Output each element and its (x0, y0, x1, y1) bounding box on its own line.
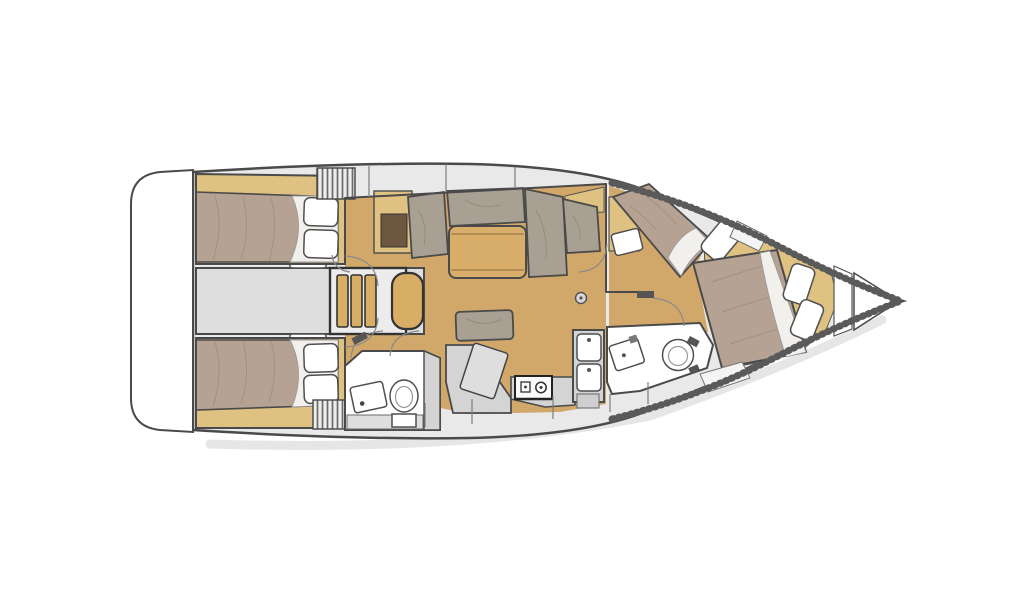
aft-head-counter (424, 351, 440, 430)
pillow (304, 343, 339, 372)
sofa-cushion (525, 189, 567, 277)
stair-tread (351, 275, 362, 327)
stove (515, 376, 552, 399)
pillow (304, 374, 339, 403)
boat-floorplan (0, 0, 1024, 600)
salon-table (449, 226, 526, 278)
mast-post (576, 293, 587, 304)
door-leaf (637, 291, 654, 298)
storage-locker (374, 191, 412, 253)
cockpit-hatch-starboard (313, 400, 347, 429)
stair-tread (337, 275, 348, 327)
sofa-cushion (408, 192, 448, 258)
double-sink (577, 334, 601, 408)
sofa-cushion (563, 199, 600, 253)
locker-inset (381, 214, 407, 247)
galley-cabinet (577, 394, 599, 408)
pillow (304, 197, 339, 226)
cockpit-hatch-port (317, 168, 355, 199)
nav-chart-table (446, 343, 511, 413)
transom-swim-platform (131, 170, 193, 432)
aft-head (345, 351, 440, 430)
aft-head-toilet (390, 380, 418, 427)
salon-bench (456, 310, 514, 341)
pillow (304, 229, 339, 258)
stair-tread (365, 275, 376, 327)
stair-tread (392, 273, 423, 329)
